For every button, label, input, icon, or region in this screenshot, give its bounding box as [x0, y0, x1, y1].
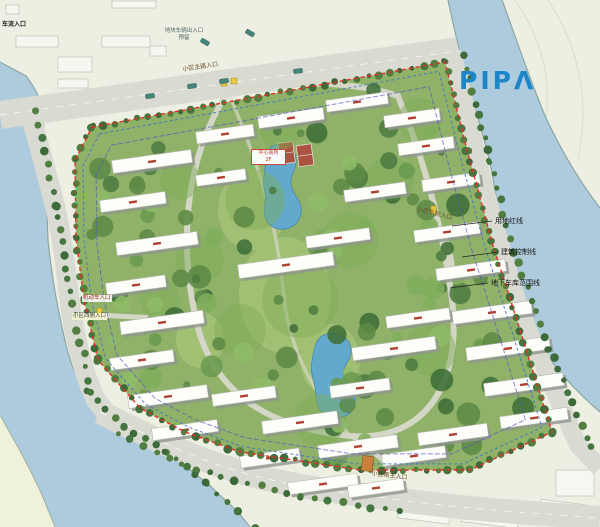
label-north-plot-note: 地块车辆出入口 预留	[152, 28, 216, 42]
legend-control-line-label: 建筑控制线	[501, 247, 536, 257]
label-north-plot-note-line2: 预留	[152, 35, 216, 42]
clubhouse-label: 中心会所 2F	[251, 149, 286, 165]
label-west-entrance: 小区西侧入口	[72, 313, 107, 320]
clubhouse-label-line2: 2F	[252, 157, 285, 164]
legend-garage-line-label: 地下车库范围线	[491, 278, 540, 288]
clubhouse-label-line1: 中心会所	[252, 150, 285, 157]
label-west-vehicle-entrance: 机动车入口	[82, 295, 112, 302]
legend-red-line-label: 用地红线	[495, 216, 523, 226]
pipa-logo: PIPΛ	[459, 66, 536, 95]
label-vehicle-entrance-nw: 车流入口	[2, 21, 26, 28]
site-plan-canvas: PIPΛ 用地红线 建筑控制线 地下车库范围线 车流入口 地块车辆出入口 预留 …	[0, 0, 600, 527]
